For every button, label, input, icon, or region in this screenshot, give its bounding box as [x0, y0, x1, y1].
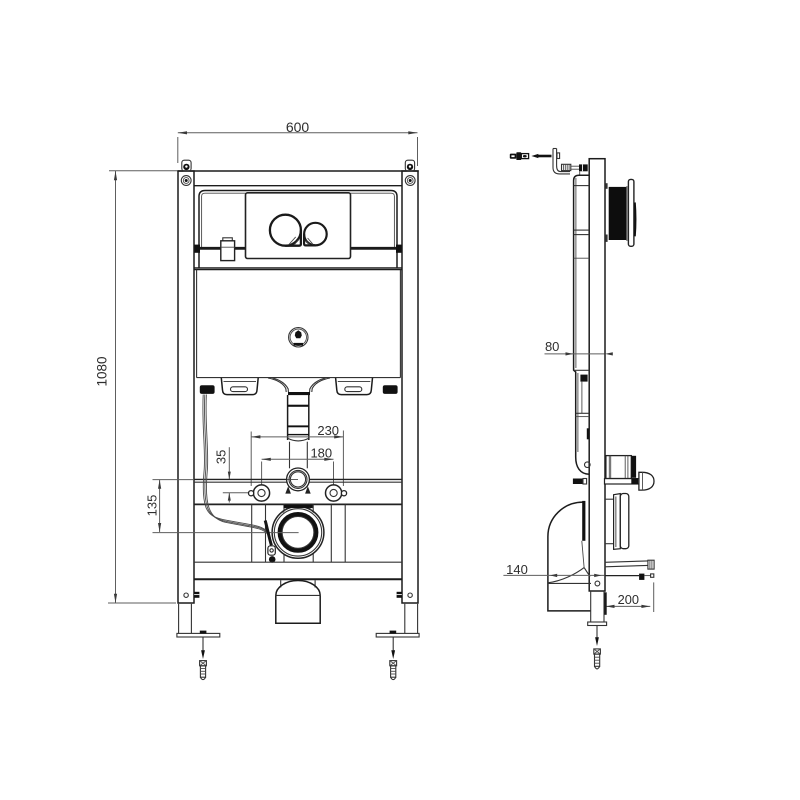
- svg-text:135: 135: [144, 495, 159, 517]
- svg-text:80: 80: [545, 339, 559, 354]
- svg-text:35: 35: [214, 450, 229, 464]
- svg-text:600: 600: [286, 119, 310, 135]
- svg-text:230: 230: [317, 423, 339, 438]
- svg-text:1080: 1080: [95, 356, 110, 386]
- svg-text:180: 180: [310, 446, 332, 461]
- svg-text:200: 200: [618, 592, 639, 607]
- svg-text:140: 140: [506, 562, 528, 577]
